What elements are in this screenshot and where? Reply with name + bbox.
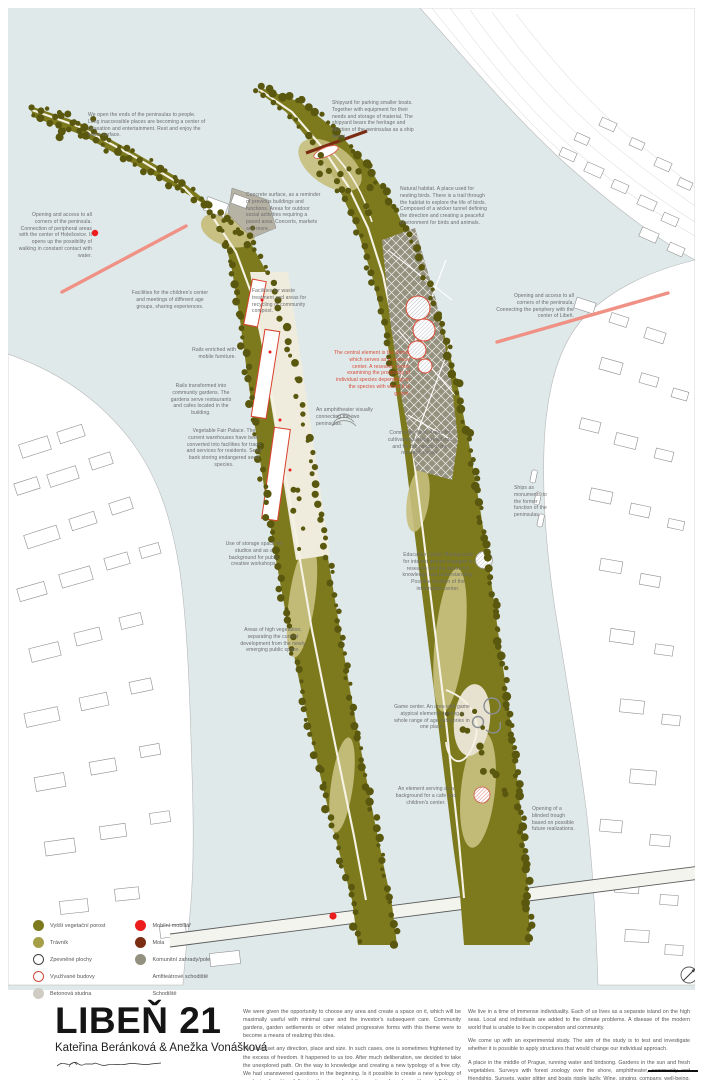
title-block: LIBEŇ 21 Kateřina Beránková & Anežka Von… xyxy=(55,1002,267,1071)
footer-paragraph: We were given the opportunity to choose … xyxy=(243,1008,461,1040)
footer: LIBEŇ 21 Kateřina Beránková & Anežka Von… xyxy=(0,1000,703,1080)
footer-paragraph: We come up with an experimental study. T… xyxy=(468,1037,690,1053)
legend-label: Schodiště xyxy=(152,991,176,997)
legend-column-left: Vyšší vegetační porostTrávníkZpevněné pl… xyxy=(33,920,105,1005)
legend-item-left-3: Využívané budovy xyxy=(33,971,105,982)
legend-item-left-4: Betonová studna xyxy=(33,988,105,999)
legend-swatch-dot-icon xyxy=(33,937,44,948)
legend-item-left-1: Trávník xyxy=(33,937,105,948)
legend-label: Využívané budovy xyxy=(50,974,95,980)
legend-swatch-ring-icon xyxy=(33,971,44,982)
legend-label: Zpevněné plochy xyxy=(50,957,92,963)
footer-paragraph: We could set any direction, place and si… xyxy=(243,1045,461,1080)
scale-bar xyxy=(648,1070,698,1072)
poster-authors: Kateřina Beránková & Anežka Vonášková xyxy=(55,1042,267,1054)
legend-swatch-dot-icon xyxy=(135,937,146,948)
legend-label: Amfiteátrové schodiště xyxy=(152,974,208,980)
legend-swatch-dot-icon xyxy=(135,954,146,965)
footer-paragraph: We live in a time of immense individuali… xyxy=(468,1008,690,1032)
legend-swatch-ring-icon xyxy=(33,954,44,965)
legend-item-left-2: Zpevněné plochy xyxy=(33,954,105,965)
legend-label: Vyšší vegetační porost xyxy=(50,923,105,929)
legend-swatch-dot-icon xyxy=(135,920,146,931)
legend-item-left-0: Vyšší vegetační porost xyxy=(33,920,105,931)
legend-item-right-0: Mobilní mobiliář xyxy=(135,920,210,931)
legend-item-right-3: Amfiteátrové schodiště xyxy=(135,971,210,982)
signature-mark xyxy=(55,1057,165,1071)
poster-canvas: We open the ends of the peninsulas to pe… xyxy=(0,0,703,1080)
legend-label: Betonová studna xyxy=(50,991,91,997)
poster-title: LIBEŇ 21 xyxy=(55,1002,267,1039)
legend-item-right-4: Schodiště xyxy=(135,988,210,999)
legend-item-right-1: Mola xyxy=(135,937,210,948)
legend-label: Komunitní zahrady/pole xyxy=(152,957,210,963)
site-plan-map xyxy=(0,0,703,1000)
legend-item-right-2: Komunitní zahrady/pole xyxy=(135,954,210,965)
footer-column-1: We were given the opportunity to choose … xyxy=(243,1008,461,1080)
legend-swatch-hatch-icon xyxy=(135,988,146,999)
legend-swatch-dot-icon xyxy=(33,920,44,931)
legend-label: Trávník xyxy=(50,940,68,946)
legend-label: Mobilní mobiliář xyxy=(152,923,191,929)
legend-column-right: Mobilní mobiliářMolaKomunitní zahrady/po… xyxy=(135,920,210,1005)
map-legend: Vyšší vegetační porostTrávníkZpevněné pl… xyxy=(33,920,210,1005)
legend-label: Mola xyxy=(152,940,164,946)
legend-swatch-dot-icon xyxy=(33,988,44,999)
north-arrow-icon xyxy=(681,967,697,983)
legend-swatch-hatch-icon xyxy=(135,971,146,982)
